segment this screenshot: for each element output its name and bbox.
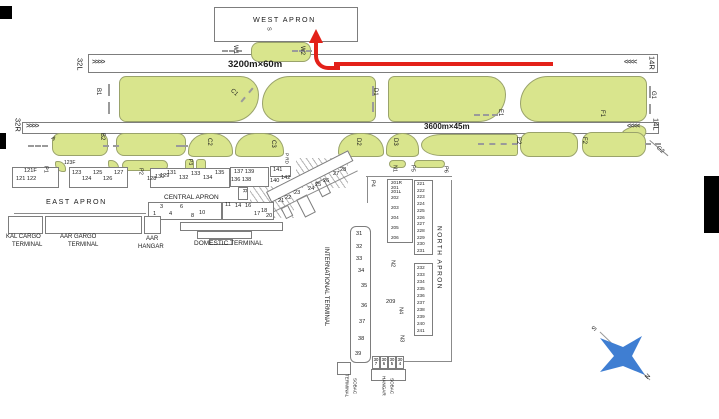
stand-east-123: 127 — [114, 171, 123, 177]
stand-domestic: 1 — [153, 212, 156, 218]
taxiway-dash — [103, 145, 119, 147]
stand-intl-col: 39 — [355, 352, 361, 358]
taxiway-n2-label: N2 — [389, 260, 395, 267]
stand-sobac-cell: 304 — [396, 356, 404, 369]
taxiway-n1-label: N1 — [391, 165, 397, 172]
north-apron-edge — [366, 176, 452, 177]
taxiway-dash — [649, 104, 651, 114]
stand-domestic: 10 — [199, 211, 205, 217]
stand-central-130: 135 — [215, 171, 224, 177]
aar-hangar-building — [144, 216, 161, 234]
runway-south-dimensions: 3600m×45m — [424, 123, 470, 131]
runway-14l-label: 14L — [652, 118, 660, 131]
stand-140-label: 140 — [270, 179, 279, 185]
runway-north-dimensions: 3200m×60m — [228, 60, 282, 70]
island — [421, 134, 518, 156]
stand-north-221: 223 — [417, 195, 425, 200]
chevrons-14l: <<<< — [627, 123, 639, 130]
stand-domestic: 16 — [245, 204, 251, 210]
stand-central-130: 134 — [203, 176, 212, 182]
taxiway-f2-label: F2 — [581, 137, 587, 144]
island — [520, 132, 578, 157]
north-apron-label: NORTH APRON — [435, 226, 442, 290]
stand-intl-row: 25 — [315, 183, 321, 189]
taxiway-f1-label: F1 — [599, 110, 605, 117]
sobac-terminal-label-1: SOBAC — [352, 378, 357, 394]
black-mark — [0, 133, 6, 149]
stand-north-232: 233 — [417, 273, 425, 278]
aar-cargo-label-1: AAR GARGO — [60, 234, 96, 240]
taxiway-p1-label: P1 — [42, 166, 48, 173]
aar-cargo-label-2: TERMINAL — [68, 242, 98, 248]
route-arrow-horizontal — [334, 62, 553, 66]
chevrons-14r: <<<< — [624, 59, 636, 66]
stand-domestic: 4 — [169, 212, 172, 218]
stand-142-label: 142 — [281, 176, 290, 182]
stand-intl-row: 22 — [285, 196, 291, 202]
stand-121-122-label: 121 122 — [16, 177, 36, 183]
stand-domestic: 11 — [225, 203, 231, 209]
stand-north-201: 205 — [391, 226, 399, 231]
taxiway-dash — [108, 102, 110, 114]
west-apron-label: WEST APRON — [253, 16, 316, 23]
stand-intl-row: 21 — [278, 199, 284, 205]
taxiway-dash — [372, 102, 374, 112]
stand-north-221: 222 — [417, 189, 425, 194]
taxiway-p4-label: P4 — [369, 180, 375, 187]
stand-north-201: 201L — [391, 190, 401, 195]
stand-east-123: 123 — [72, 171, 81, 177]
stand-domestic: 3 — [160, 205, 163, 211]
stand-north-201: 204 — [391, 216, 399, 221]
island — [235, 133, 284, 157]
stand-north-221: 226 — [417, 216, 425, 221]
stand-north-221: 221 — [417, 182, 425, 187]
stand-intl-row: 24 — [308, 187, 314, 193]
route-arrow-corner — [314, 45, 340, 70]
kal-cargo-label-2: TERMINAL — [12, 242, 42, 248]
stand-north-232: 232 — [417, 266, 425, 271]
stand-intl-col: 35 — [361, 284, 367, 290]
stand-central-130: 132 — [179, 176, 188, 182]
stand-north-221: 224 — [417, 202, 425, 207]
taxiway-p3-label: P3 — [187, 159, 192, 165]
stand-intl-col: 33 — [356, 257, 362, 263]
taxiway-b2-label: B2 — [99, 133, 105, 140]
island — [414, 160, 445, 168]
domestic-terminal-building — [180, 222, 283, 231]
stand-intl-col: 38 — [358, 337, 364, 343]
stand-domestic: 20 — [266, 214, 272, 220]
taxiway-c3-label: C3 — [270, 140, 276, 148]
stand-intl-col: 32 — [356, 245, 362, 251]
kal-cargo-label-1: KAL CARGO — [6, 234, 41, 240]
taxiway-p6-label: P6 — [442, 166, 448, 173]
taxiway-dash — [478, 143, 518, 145]
stand-north-232: 236 — [417, 294, 425, 299]
apron-edge-line — [14, 213, 146, 214]
stand-north-221: 227 — [417, 222, 425, 227]
taxiway-d2-label: D2 — [355, 138, 361, 146]
taxiway-dash — [474, 114, 498, 116]
stand-intl-col: 37 — [359, 320, 365, 326]
stand-north-221: 230 — [417, 242, 425, 247]
stand-sobac-cell: 305 — [388, 356, 396, 369]
aar-cargo-building — [45, 216, 142, 234]
stand-east-123: 125 — [93, 171, 102, 177]
stand-domestic: 8 — [191, 214, 194, 220]
taxiway-w2-label: W2 — [299, 46, 305, 55]
island — [520, 76, 647, 122]
kal-cargo-building — [8, 216, 43, 234]
taxiway-n4-label: N4 — [397, 307, 403, 314]
taxiway-p-rd-label: P RD — [284, 153, 289, 164]
stand-domestic: 17 — [254, 212, 260, 218]
taxiway-d3-label: D3 — [392, 138, 398, 146]
stand-east-123: 124 — [82, 177, 91, 183]
north-apron-edge — [403, 361, 452, 362]
stand-123f-label: 123F — [64, 161, 75, 166]
stand-north-221: 228 — [417, 229, 425, 234]
stand-209-label: 209 — [386, 300, 395, 306]
runway-32r-label: 32R — [14, 118, 22, 132]
taxiway-w1-label: W1 — [232, 45, 238, 54]
stand-north-232: 239 — [417, 315, 425, 320]
stand-domestic: 14 — [235, 204, 241, 210]
taxiway-s-label: S — [265, 27, 271, 31]
chevrons-32l: >>>> — [92, 59, 104, 66]
island — [386, 133, 419, 157]
stand-121f-label: 121F — [24, 169, 37, 175]
stand-north-232: 241 — [417, 329, 425, 334]
domestic-terminal-building — [197, 231, 252, 239]
stand-intl-row: 27 — [333, 172, 339, 178]
central-apron-label: CENTRAL APRON — [164, 195, 219, 202]
sobac-terminal-label-2: TERMINAL — [344, 374, 349, 397]
taxiway-dash — [28, 145, 48, 147]
chevrons-32r: >>>> — [26, 123, 38, 130]
taxiway-dash — [176, 145, 188, 147]
taxiway-p5-label: P5 — [409, 165, 415, 172]
black-mark — [704, 176, 719, 233]
sobac-hangar-label-2: HANGAR — [381, 376, 386, 396]
runway-32l-label: 32L — [76, 58, 84, 71]
stand-domestic: 6 — [180, 205, 183, 211]
stand-north-221: 229 — [417, 236, 425, 241]
stand-east-123: 126 — [103, 177, 112, 183]
stand-136-138-label: 136 138 — [231, 178, 251, 184]
stand-intl-row: 23 — [294, 191, 300, 197]
stand-north-201: 202 — [391, 196, 399, 201]
island — [582, 132, 646, 157]
runway-14r-label: 14R — [648, 56, 656, 70]
stand-north-232: 234 — [417, 280, 425, 285]
stand-north-232: 240 — [417, 322, 425, 327]
stand-north-232: 235 — [417, 287, 425, 292]
stand-north-201: 203 — [391, 206, 399, 211]
taxiway-p2-label: P2 — [137, 168, 143, 175]
stand-north-232: 238 — [417, 308, 425, 313]
taxiway-c2-label: C2 — [206, 138, 212, 146]
route-arrow-head — [309, 29, 323, 43]
stand-central-130: 130 — [155, 175, 164, 181]
taxiway-d1-label: D1 — [372, 88, 378, 96]
domestic-terminal-label: DOMESTIC TERMINAL — [194, 241, 263, 248]
stand-north-232: 237 — [417, 301, 425, 306]
stand-137-139-label: 137 139 — [234, 170, 254, 176]
aar-hangar-label-1: AAR — [146, 236, 158, 242]
island — [262, 76, 376, 122]
taxiway-e1-label: E1 — [497, 109, 503, 116]
taxiway-dash — [108, 84, 110, 96]
stand-north-201: 206 — [391, 236, 399, 241]
stand-intl-col: 31 — [356, 232, 362, 238]
taxiway-n3-label: N3 — [398, 335, 404, 342]
stand-north-221: 225 — [417, 209, 425, 214]
stand-intl-row: 26 — [323, 179, 329, 185]
stand-north-221: 231 — [417, 249, 425, 254]
island — [119, 76, 259, 122]
taxiway-e2-label: E2 — [515, 137, 521, 144]
north-apron-edge — [451, 180, 452, 362]
airport-diagram: WEST APRONSW1W23200m×60m3600m×45m32L14R3… — [0, 0, 719, 419]
taxiway-b1-label: B1 — [95, 88, 101, 95]
stand-141-label: 141 — [273, 168, 282, 174]
black-mark — [0, 6, 12, 19]
stand-central-130: 131 — [167, 171, 176, 177]
aar-hangar-label-2: HANGAR — [138, 244, 164, 250]
east-apron-label: EAST APRON — [46, 198, 107, 205]
international-terminal-label: INTERNATIONAL TERMINAL — [323, 247, 329, 326]
taxiway-r-label: R — [241, 189, 246, 193]
stand-intl-row: 28 — [340, 168, 346, 174]
taxiway-g1-label: G1 — [650, 91, 656, 99]
stand-central-130: 133 — [191, 172, 200, 178]
stand-intl-col: 34 — [358, 269, 364, 275]
north-apron-edge — [367, 177, 368, 203]
west-apron-outline — [214, 7, 358, 42]
stand-intl-col: 36 — [361, 304, 367, 310]
sobac-hangar-label-1: SOBAC — [389, 378, 394, 394]
stand-sobac-cell: 306 — [380, 356, 388, 369]
stand-sobac-cell: 307 — [372, 356, 380, 369]
